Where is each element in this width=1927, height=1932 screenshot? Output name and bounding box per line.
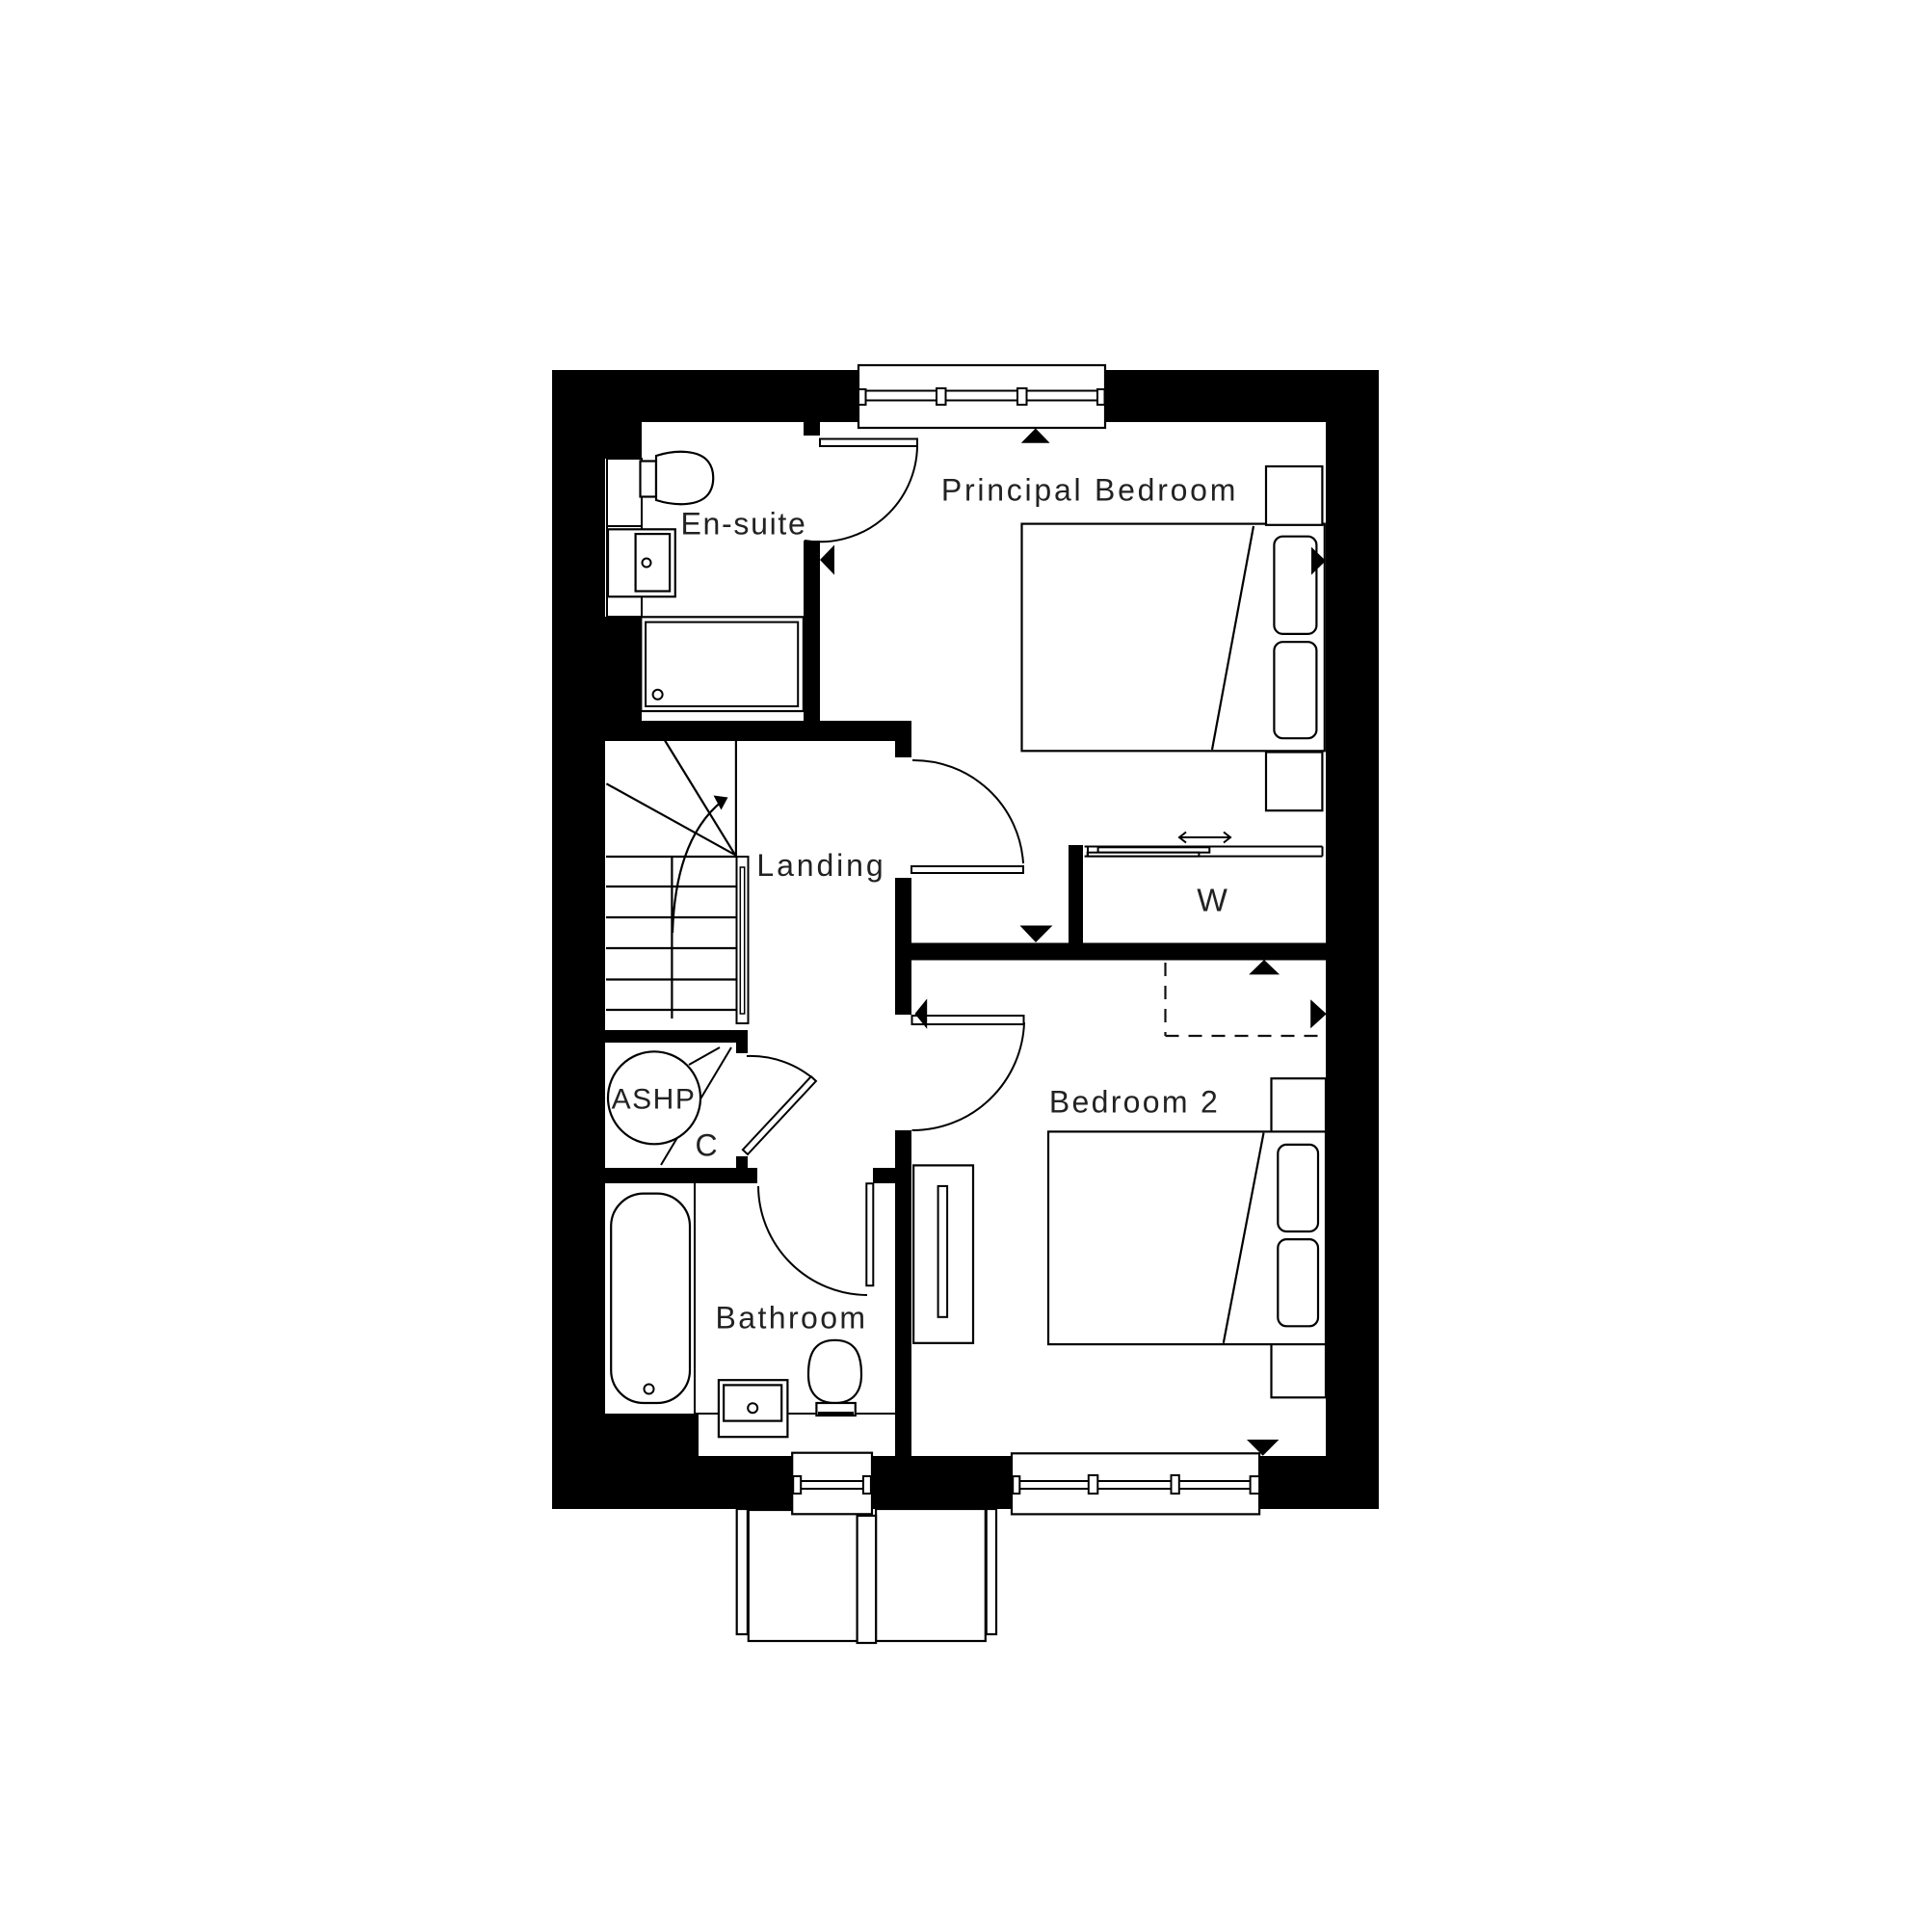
svg-text:C: C [695,1127,717,1162]
svg-text:Landing: Landing [756,848,885,883]
svg-text:W: W [1197,884,1227,919]
svg-text:En-suite: En-suite [681,507,807,542]
svg-text:ASHP: ASHP [612,1084,697,1116]
svg-text:Bedroom 2: Bedroom 2 [1049,1085,1220,1120]
svg-text:Principal Bedroom: Principal Bedroom [941,473,1238,508]
svg-text:Bathroom: Bathroom [716,1300,868,1335]
